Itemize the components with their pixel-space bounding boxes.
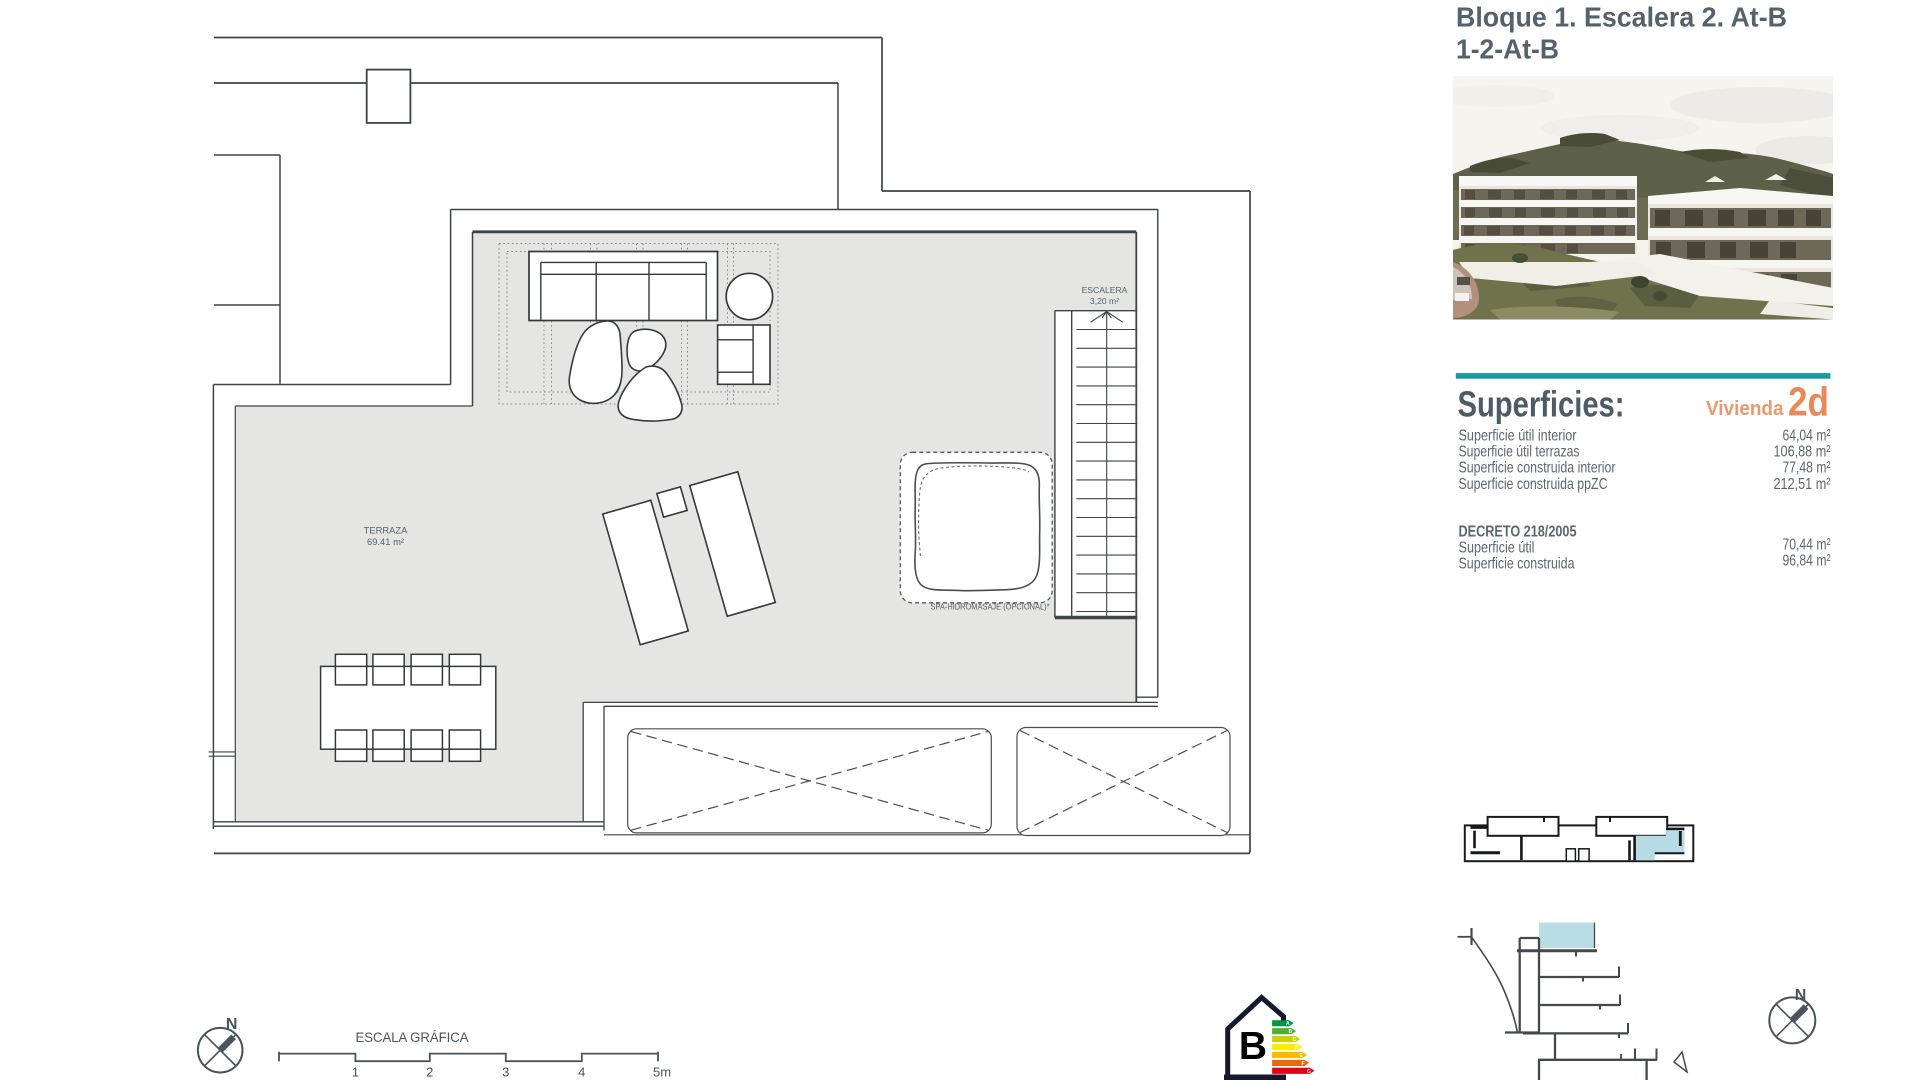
svg-text:1-2-At-B: 1-2-At-B (1456, 34, 1559, 65)
svg-text:C: C (1293, 1037, 1297, 1043)
svg-text:2d: 2d (1788, 379, 1829, 425)
svg-text:106,88 m²: 106,88 m² (1774, 444, 1831, 461)
svg-text:ESCALERA: ESCALERA (1082, 285, 1128, 295)
svg-text:Superficies:: Superficies: (1458, 384, 1625, 425)
svg-text:Superficie construida: Superficie construida (1459, 556, 1575, 573)
svg-text:SPA-HIDROMASAJE (OPCIONAL)*: SPA-HIDROMASAJE (OPCIONAL)* (931, 602, 1051, 612)
svg-text:N: N (226, 1016, 238, 1033)
svg-text:70,44 m²: 70,44 m² (1783, 537, 1831, 554)
svg-text:3: 3 (502, 1065, 509, 1080)
svg-text:A: A (1286, 1021, 1290, 1027)
svg-text:B: B (1239, 1025, 1267, 1068)
svg-text:Vivienda: Vivienda (1706, 398, 1784, 420)
svg-text:Superficie útil terrazas: Superficie útil terrazas (1459, 444, 1580, 461)
svg-text:212,51 m²: 212,51 m² (1774, 476, 1831, 493)
svg-text:Superficie útil: Superficie útil (1459, 540, 1535, 557)
svg-text:64,04 m²: 64,04 m² (1783, 427, 1831, 444)
svg-text:D: D (1295, 1045, 1299, 1051)
svg-text:Superficie útil interior: Superficie útil interior (1459, 427, 1577, 444)
svg-text:Superficie construida ppZC: Superficie construida ppZC (1459, 476, 1608, 493)
svg-text:77,48 m²: 77,48 m² (1783, 460, 1831, 477)
svg-text:N: N (1795, 987, 1807, 1004)
svg-text:4: 4 (578, 1065, 585, 1080)
svg-text:2: 2 (426, 1065, 433, 1080)
svg-text:69.41 m²: 69.41 m² (367, 536, 404, 547)
svg-text:TERRAZA: TERRAZA (364, 525, 409, 536)
svg-text:G: G (1307, 1069, 1311, 1075)
svg-text:ESCALA GRÁFICA: ESCALA GRÁFICA (356, 1030, 469, 1045)
svg-text:B: B (1289, 1029, 1293, 1035)
svg-text:3,20 m²: 3,20 m² (1090, 296, 1119, 306)
svg-text:Bloque 1. Escalera 2. At-B: Bloque 1. Escalera 2. At-B (1456, 2, 1787, 33)
svg-text:96,84 m²: 96,84 m² (1783, 553, 1831, 570)
svg-text:DECRETO 218/2005: DECRETO 218/2005 (1459, 524, 1577, 541)
svg-text:F: F (1302, 1061, 1305, 1067)
svg-text:5m: 5m (653, 1065, 671, 1080)
svg-text:Superficie construida interior: Superficie construida interior (1459, 460, 1616, 477)
svg-text:1: 1 (352, 1065, 359, 1080)
